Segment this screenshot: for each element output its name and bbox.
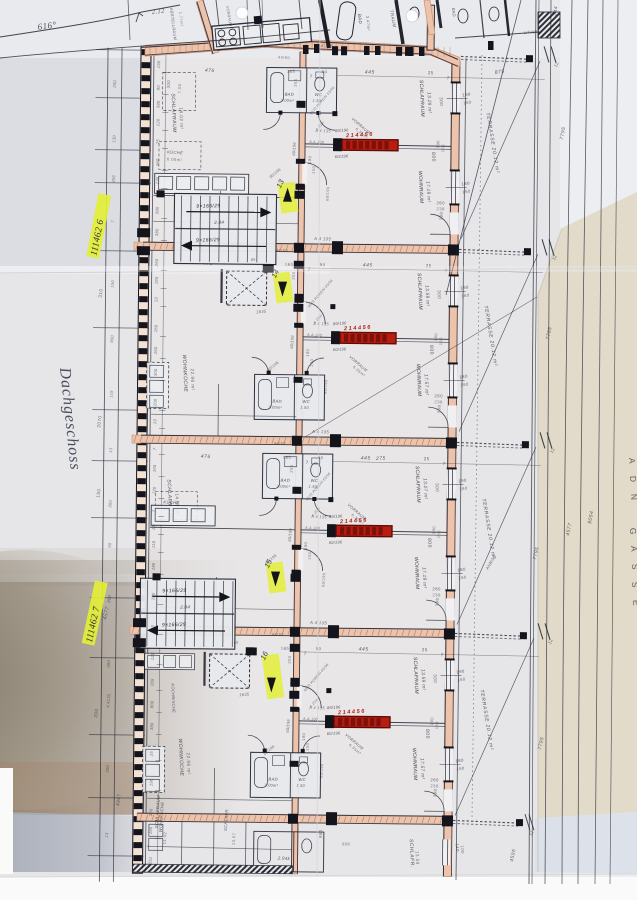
svg-text:60/196: 60/196 [335,153,349,159]
svg-text:44/50: 44/50 [278,56,290,60]
svg-text:190: 190 [148,778,153,786]
svg-text:120: 120 [151,486,156,494]
svg-text:7: 7 [306,460,309,465]
svg-text:255: 255 [287,655,293,664]
svg-text:398: 398 [111,174,117,183]
svg-text:13.59 m²: 13.59 m² [420,669,427,691]
svg-text:13: 13 [104,832,110,838]
svg-text:7: 7 [304,651,307,656]
svg-text:7: 7 [447,75,450,80]
svg-text:445: 445 [365,69,375,75]
svg-text:2.84: 2.84 [179,604,190,609]
svg-text:KÜCHE: KÜCHE [167,149,183,155]
svg-text:800: 800 [106,594,112,603]
svg-text:60/196: 60/196 [291,142,297,156]
svg-text:9×166/29: 9×166/29 [196,237,220,244]
svg-text:60/196: 60/196 [289,334,295,348]
svg-text:260: 260 [155,158,161,167]
svg-text:13: 13 [150,625,155,631]
svg-text:60/196: 60/196 [329,539,343,545]
svg-text:260: 260 [436,200,445,205]
svg-text:476: 476 [201,454,211,460]
svg-text:186: 186 [151,562,156,570]
svg-text:300: 300 [435,483,440,492]
svg-text:150: 150 [305,742,311,751]
svg-text:13.07 m²: 13.07 m² [422,478,429,500]
svg-text:14.02 m²: 14.02 m² [178,107,184,129]
svg-text:7: 7 [443,461,446,466]
svg-text:165: 165 [154,276,159,284]
svg-text:BAD: BAD [451,8,457,17]
svg-text:255: 255 [289,464,295,473]
svg-text:190: 190 [150,592,155,600]
svg-text:300: 300 [148,808,153,816]
svg-text:190: 190 [303,541,309,550]
svg-text:200: 200 [112,79,118,89]
svg-text:A 4 135: A 4 135 [313,236,331,242]
svg-text:118: 118 [151,540,156,548]
svg-text:60/196: 60/196 [327,730,341,736]
svg-text:3.00m²: 3.00m² [280,98,294,103]
svg-text:160: 160 [436,530,442,539]
svg-text:WC: WC [311,478,319,483]
svg-text:A.A.100: A.A.100 [306,333,323,338]
svg-text:150: 150 [309,358,315,367]
svg-text:60/196: 60/196 [333,346,347,352]
svg-text:120: 120 [155,118,160,126]
svg-text:260: 260 [153,346,159,355]
svg-text:1635: 1635 [256,309,267,315]
svg-text:60/196: 60/196 [285,718,291,732]
svg-text:90: 90 [107,542,113,548]
svg-text:260: 260 [154,258,160,267]
svg-text:165: 165 [281,646,290,651]
svg-text:800: 800 [428,345,434,355]
svg-text:238: 238 [432,592,441,597]
svg-text:WC: WC [298,777,306,782]
svg-text:160: 160 [152,464,157,472]
svg-text:255: 255 [291,271,297,280]
svg-text:800: 800 [426,538,432,548]
svg-text:2.12: 2.12 [151,8,165,16]
svg-text:190: 190 [301,732,307,741]
svg-text:1.50: 1.50 [300,405,309,410]
svg-text:3.00m²: 3.00m² [268,404,282,409]
svg-text:44/50: 44/50 [272,633,284,637]
svg-text:238: 238 [430,783,439,788]
svg-text:44/50: 44/50 [274,442,286,446]
svg-text:190: 190 [305,348,311,357]
svg-text:380: 380 [154,228,159,236]
svg-text:22.96 m²: 22.96 m² [186,752,192,774]
svg-text:3.00m²: 3.00m² [276,484,290,489]
svg-text:160: 160 [438,337,444,346]
svg-text:13: 13 [151,525,156,531]
svg-text:255: 255 [293,78,299,87]
svg-text:13: 13 [108,447,114,453]
svg-text:BAD: BAD [272,399,282,404]
svg-text:398: 398 [342,841,351,846]
svg-text:7: 7 [310,74,313,79]
svg-text:22.96 m²: 22.96 m² [190,368,196,390]
svg-text:6.00m²: 6.00m² [167,156,183,162]
svg-text:N: N [629,494,637,501]
svg-text:25: 25 [428,70,434,75]
svg-text:WC: WC [315,92,323,97]
svg-text:A.A.100: A.A.100 [302,717,319,722]
svg-text:13: 13 [152,419,157,425]
svg-text:25: 25 [155,139,160,146]
svg-text:13.07: 13.07 [231,832,237,845]
svg-text:165: 165 [287,69,296,74]
svg-text:118: 118 [108,390,114,398]
svg-text:300: 300 [104,764,110,773]
svg-text:100: 100 [460,845,465,854]
svg-text:398: 398 [436,404,442,413]
svg-text:160: 160 [440,144,446,153]
svg-text:300: 300 [166,80,172,89]
svg-text:150: 150 [311,165,317,174]
svg-text:13: 13 [153,297,158,303]
svg-text:300: 300 [437,290,442,299]
svg-text:130: 130 [155,176,160,184]
svg-text:140: 140 [455,843,460,852]
svg-text:190: 190 [307,155,313,164]
svg-text:G: G [628,528,637,536]
svg-text:80/196: 80/196 [333,320,347,326]
svg-text:275: 275 [375,456,386,462]
svg-text:800: 800 [424,729,430,739]
svg-text:9×166/29: 9×166/29 [162,588,186,595]
svg-text:130: 130 [111,134,117,143]
svg-text:D: D [628,476,637,483]
svg-text:13.59 m²: 13.59 m² [424,285,431,307]
svg-text:7: 7 [441,652,444,657]
svg-text:160: 160 [434,721,440,730]
svg-text:BAD: BAD [281,478,291,483]
svg-text:380: 380 [155,100,160,108]
svg-text:25: 25 [422,647,428,652]
svg-text:380: 380 [106,659,112,668]
svg-text:90: 90 [316,646,322,651]
svg-text:80/196: 80/196 [335,127,349,133]
svg-text:9×166/29: 9×166/29 [162,622,186,629]
svg-text:17.57 m²: 17.57 m² [423,374,430,396]
svg-text:238: 238 [436,206,445,211]
svg-text:260: 260 [153,324,159,333]
svg-text:260: 260 [432,586,441,591]
svg-text:44/50: 44/50 [276,249,288,253]
svg-text:380: 380 [149,722,154,730]
svg-text:800: 800 [430,152,436,162]
svg-text:300: 300 [433,674,438,683]
svg-text:476: 476 [205,68,215,74]
svg-text:BAD: BAD [268,777,278,782]
svg-text:398: 398 [438,211,444,220]
svg-text:165: 165 [149,678,154,686]
svg-text:7.08: 7.08 [177,83,183,93]
svg-text:80: 80 [156,85,161,91]
svg-text:200: 200 [152,398,158,407]
svg-text:SCHLAFR.: SCHLAFR. [408,839,415,868]
svg-text:60/196: 60/196 [287,527,293,541]
svg-text:445: 445 [361,455,371,461]
svg-text:80/196: 80/196 [327,704,341,710]
svg-text:800: 800 [109,334,115,343]
svg-text:17.57 m²: 17.57 m² [419,758,426,780]
svg-text:445: 445 [359,646,369,652]
svg-text:260: 260 [434,393,443,398]
svg-text:9×166/29: 9×166/29 [196,203,220,210]
svg-text:S: S [630,564,637,571]
svg-text:1.50: 1.50 [296,783,305,788]
svg-text:260: 260 [430,777,439,782]
svg-text:398: 398 [434,597,440,606]
svg-text:E: E [631,600,637,607]
svg-text:13.59: 13.59 [415,851,421,865]
svg-text:17.19 m²: 17.19 m² [425,181,432,203]
svg-text:A: A [627,458,637,465]
svg-text:17.19 m²: 17.19 m² [421,567,428,589]
svg-text:3.00m²: 3.00m² [264,782,278,787]
svg-text:WC: WC [302,399,310,404]
svg-text:90: 90 [322,69,328,74]
svg-text:25: 25 [424,456,430,461]
svg-text:190: 190 [156,60,161,68]
svg-text:120: 120 [150,652,155,660]
svg-text:190: 190 [110,279,116,288]
svg-text:165: 165 [283,455,292,460]
svg-text:1635: 1635 [239,691,250,697]
svg-text:800: 800 [149,700,154,708]
svg-text:2.84: 2.84 [213,220,224,225]
svg-text:A: A [629,546,637,553]
svg-text:2.94k: 2.94k [277,856,291,862]
svg-text:150: 150 [307,551,313,560]
svg-text:300: 300 [153,368,158,376]
svg-text:A.A.100: A.A.100 [308,140,325,145]
svg-text:380: 380 [154,206,159,214]
svg-text:380: 380 [107,499,113,508]
svg-text:KÜCHE: KÜCHE [163,499,179,505]
svg-text:25: 25 [149,751,154,758]
svg-text:BAD: BAD [285,92,295,97]
svg-text:398: 398 [432,788,438,797]
svg-text:13.29 m²: 13.29 m² [426,92,433,114]
svg-text:238: 238 [434,399,443,404]
svg-text:300: 300 [439,97,444,106]
svg-text:800: 800 [318,829,324,838]
svg-text:S: S [630,582,637,589]
